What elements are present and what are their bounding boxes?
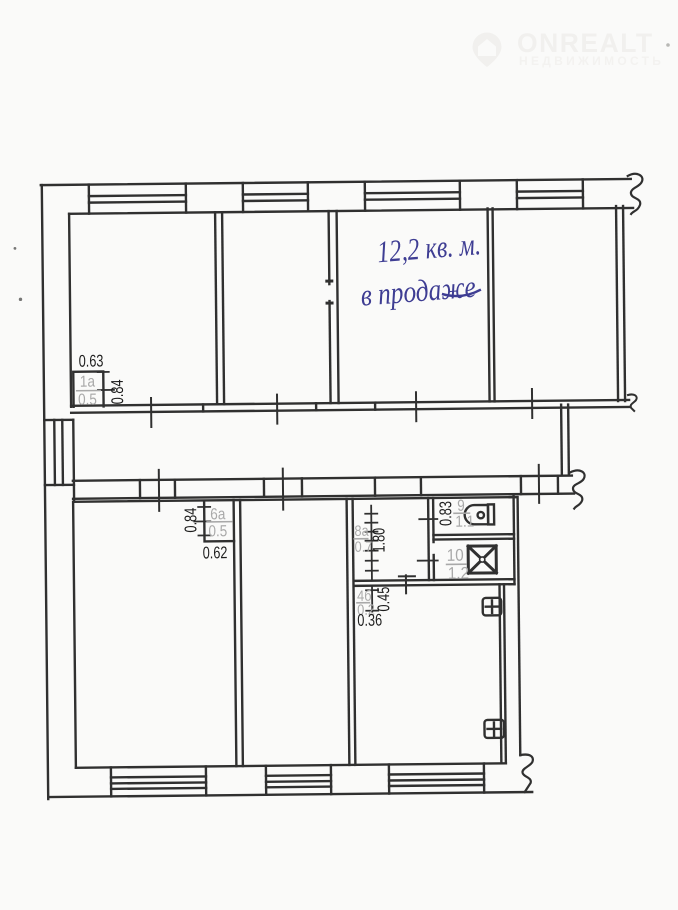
svg-text:0.83: 0.83 bbox=[436, 501, 455, 526]
svg-text:0.7: 0.7 bbox=[355, 538, 373, 555]
svg-text:0.5: 0.5 bbox=[78, 392, 97, 409]
svg-text:0.5: 0.5 bbox=[208, 523, 227, 540]
svg-text:0.84: 0.84 bbox=[181, 508, 200, 533]
svg-text:1.80: 1.80 bbox=[370, 528, 389, 553]
svg-text:8а: 8а bbox=[354, 522, 369, 539]
svg-text:0.84: 0.84 bbox=[108, 379, 127, 404]
svg-text:0.36: 0.36 bbox=[357, 611, 382, 630]
svg-text:10: 10 bbox=[447, 546, 464, 565]
svg-text:0.63: 0.63 bbox=[79, 352, 104, 371]
svg-text:НЕДВИЖИМОСТЬ: НЕДВИЖИМОСТЬ bbox=[519, 54, 664, 68]
svg-text:1.2: 1.2 bbox=[448, 564, 469, 583]
svg-text:0.45: 0.45 bbox=[374, 587, 393, 612]
svg-text:0.62: 0.62 bbox=[203, 543, 228, 562]
svg-text:1.1: 1.1 bbox=[455, 514, 474, 531]
svg-text:1а: 1а bbox=[80, 374, 96, 391]
